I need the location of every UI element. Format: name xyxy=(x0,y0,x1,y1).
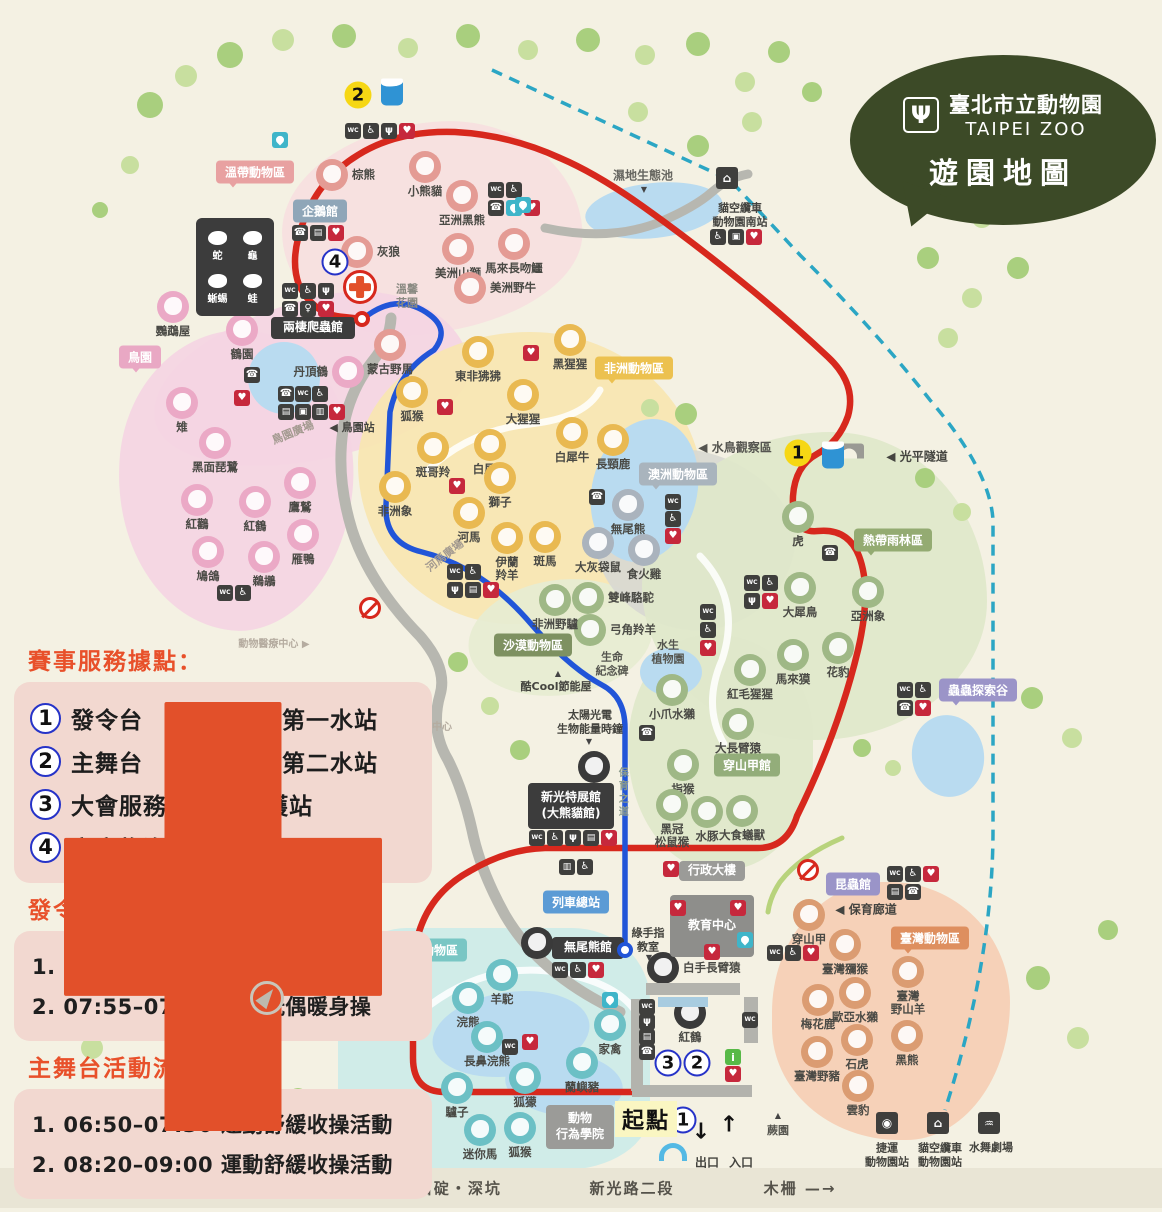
map-text: 濕地生態池 xyxy=(613,169,673,184)
reptile-item-label: 蜥蜴 xyxy=(208,274,228,305)
acc-icon: ♿ xyxy=(577,859,593,875)
animal-marker xyxy=(409,151,441,183)
animal-label: 弓角羚羊 xyxy=(610,623,656,636)
acc-icon: ♿ xyxy=(300,283,316,299)
food-icon: ψ xyxy=(447,582,463,598)
animal-label: 水豚 xyxy=(696,830,719,843)
animal-marker xyxy=(379,471,411,503)
wc-icon: WC xyxy=(295,386,311,402)
map-text: 捷運 動物園站 xyxy=(865,1141,909,1169)
wc-icon: WC xyxy=(217,585,233,601)
animal-label: 黑面琵鷺 xyxy=(192,461,238,474)
point-marker-1: 1 xyxy=(785,440,812,467)
phone-icon: ☎ xyxy=(282,301,298,317)
legend-row: 3 大會服務區 醫護站 xyxy=(30,787,416,821)
zone-tag: 澳洲動物區 xyxy=(639,463,717,486)
animal-label: 紅鶴 xyxy=(679,1031,702,1044)
acc-icon: ♿ xyxy=(785,945,801,961)
zoo-name-zh: 臺北市立動物園 xyxy=(949,89,1103,119)
aed-icon: ♥ xyxy=(803,945,819,961)
animal-marker xyxy=(484,462,516,494)
wc-icon: WC xyxy=(665,494,681,510)
animal-marker xyxy=(782,501,814,533)
animal-label: 亞洲黑熊 xyxy=(439,214,485,227)
zone-tag: 臺灣動物區 xyxy=(891,927,969,950)
animal-label: 獅子 xyxy=(489,496,512,509)
no-entry-icon xyxy=(359,597,381,619)
route-endpoint xyxy=(354,311,370,327)
phone-icon: ☎ xyxy=(292,225,308,241)
animal-marker xyxy=(284,467,316,499)
aed-icon: ♥ xyxy=(399,123,415,139)
bus-icon: ▣ xyxy=(728,229,744,245)
animal-label: 虎 xyxy=(792,535,804,548)
animal-marker xyxy=(839,977,871,1009)
animal-marker xyxy=(734,654,766,686)
animal-marker xyxy=(892,956,924,988)
drop-icon xyxy=(272,132,288,148)
aed-icon: ♥ xyxy=(437,399,453,415)
animal-marker xyxy=(332,356,364,388)
vend-icon: ▤ xyxy=(465,582,481,598)
animal-label: 馬來獏 xyxy=(776,673,811,686)
animal-marker xyxy=(507,379,539,411)
animal-marker xyxy=(793,899,825,931)
animal-marker xyxy=(574,614,606,646)
animal-marker xyxy=(504,1112,536,1144)
zoo-logo: Ψ 臺北市立動物園 TAIPEI ZOO 遊園地圖 xyxy=(850,55,1156,225)
animal-label: 鷹鷲 xyxy=(289,501,312,514)
animal-label: 黑熊 xyxy=(896,1054,919,1067)
animal-label: 狐猴 xyxy=(509,1146,532,1159)
building-label: 兩棲爬蟲館 xyxy=(271,317,355,339)
animal-marker xyxy=(316,159,348,191)
aed-icon: ♥ xyxy=(663,861,679,877)
zone-tag: 熱帶雨林區 xyxy=(854,529,932,552)
animal-marker xyxy=(453,497,485,529)
animal-label: 東非狒狒 xyxy=(455,370,501,383)
animal-label: 長頸鹿 xyxy=(596,458,631,471)
bus-icon: ▣ xyxy=(295,404,311,420)
point-marker-2: 2 xyxy=(345,82,372,109)
zone-tag: 列車總站 xyxy=(543,891,609,914)
map-text: 出口 xyxy=(695,1156,719,1171)
medical-cross-icon xyxy=(343,270,377,304)
wc-icon: WC xyxy=(552,962,568,978)
animal-marker xyxy=(802,984,834,1016)
aed-icon: ♥ xyxy=(588,962,604,978)
acc-icon: ♿ xyxy=(506,182,522,198)
zone-tag: 穿山甲館 xyxy=(714,754,780,777)
animal-marker xyxy=(396,376,428,408)
animal-label: 黑猩猩 xyxy=(553,358,588,371)
animal-label: 臺灣野豬 xyxy=(794,1070,840,1083)
animal-marker xyxy=(199,427,231,459)
vend-icon: ▤ xyxy=(583,830,599,846)
animal-marker xyxy=(287,519,319,551)
aed-icon: ♥ xyxy=(523,345,539,361)
animal-marker xyxy=(181,484,213,516)
animal-marker xyxy=(446,180,478,212)
animal-marker xyxy=(841,1024,873,1056)
animal-marker xyxy=(726,795,758,827)
aed-icon: ♥ xyxy=(234,390,250,406)
map-text: ▲ xyxy=(555,669,561,679)
animal-label: 灰狼 xyxy=(377,245,400,258)
animal-marker xyxy=(498,228,530,260)
zone-tag: 蟲蟲探索谷 xyxy=(939,679,1017,702)
phone-icon: ☎ xyxy=(278,386,294,402)
exhibit-icon xyxy=(578,751,610,783)
map-text: ◀ 光平隧道 xyxy=(886,450,947,465)
animal-label: 紅鶴 xyxy=(244,520,267,533)
animal-label: 鵜鶘 xyxy=(253,575,276,588)
animal-label: 斑哥羚 xyxy=(416,466,451,479)
acc-icon: ♿ xyxy=(547,830,563,846)
wc-icon: WC xyxy=(887,866,903,882)
wc-icon: WC xyxy=(639,999,655,1015)
animal-label: 鳩鴿 xyxy=(197,570,220,583)
animal-marker xyxy=(597,424,629,456)
map-text: 貓空纜車 動物園南站 xyxy=(713,201,768,229)
aed-icon: ♥ xyxy=(483,582,499,598)
map-title: 遊園地圖 xyxy=(850,150,1156,192)
map-text: 蕨園 xyxy=(767,1124,789,1138)
mrt-icon: ◉ xyxy=(876,1112,898,1134)
phone-icon: ☎ xyxy=(822,545,838,561)
animal-marker xyxy=(248,541,280,573)
acc-icon: ♿ xyxy=(915,682,931,698)
point-3-badge: 3 xyxy=(30,789,61,820)
animal-marker xyxy=(166,387,198,419)
animal-marker xyxy=(491,522,523,554)
animal-label: 鶴園 xyxy=(231,348,254,361)
animal-marker xyxy=(474,429,506,461)
food-icon: ψ xyxy=(639,1014,655,1030)
aed-icon: ♥ xyxy=(704,944,720,960)
phone-icon: ☎ xyxy=(639,725,655,741)
zoo-name-en: TAIPEI ZOO xyxy=(949,119,1103,140)
train-icon: ▥ xyxy=(559,859,575,875)
aed-icon: ♥ xyxy=(665,528,681,544)
aed-icon: ♥ xyxy=(601,830,617,846)
animal-marker xyxy=(829,929,861,961)
animal-label: 家禽 xyxy=(599,1043,622,1056)
acc-icon: ♿ xyxy=(570,962,586,978)
animal-marker xyxy=(454,272,486,304)
animal-marker xyxy=(822,632,854,664)
acc-icon: ♿ xyxy=(762,575,778,591)
acc-icon: ♿ xyxy=(700,622,716,638)
animal-marker xyxy=(529,521,561,553)
race-legend: 賽事服務據點： 1 發令台 1 第一水站 2 主舞台 2 第二水站 3 大會服務… xyxy=(14,634,432,1199)
animal-marker xyxy=(656,789,688,821)
map-text: ◀ 水鳥觀察區 xyxy=(698,441,771,456)
vend-icon: ▤ xyxy=(310,225,326,241)
phone-icon: ☎ xyxy=(905,884,921,900)
start-point-label: 起點 xyxy=(615,1101,677,1137)
aed-icon: ♥ xyxy=(746,229,762,245)
point-1-badge: 1 xyxy=(30,703,61,734)
animal-marker xyxy=(509,1062,541,1094)
map-text: ◀ 鳥園站 xyxy=(329,421,374,435)
water-cup-icon xyxy=(381,79,403,106)
map-text: 綠手指 教室 xyxy=(632,926,665,954)
fountain-icon: ♒ xyxy=(978,1112,1000,1134)
animal-label: 紅鸛 xyxy=(186,518,209,531)
animal-marker xyxy=(464,1114,496,1146)
legend-panel-points: 1 發令台 1 第一水站 2 主舞台 2 第二水站 3 大會服務區 醫護站 4 xyxy=(14,682,432,883)
wc-icon: WC xyxy=(447,564,463,580)
animal-label: 丹頂鶴 xyxy=(294,365,329,378)
food-icon: ψ xyxy=(565,830,581,846)
map-text: 水生 植物園 xyxy=(652,638,685,666)
map-text: 酷Cool節能屋 xyxy=(521,680,592,694)
animal-label: 大食蟻獸 xyxy=(719,829,765,842)
zone-tag: 企鵝館 xyxy=(293,200,347,223)
zone-tag: 溫帶動物區 xyxy=(216,161,294,184)
route-endpoint xyxy=(617,942,633,958)
drop-icon xyxy=(602,992,618,1008)
wc-icon: WC xyxy=(744,575,760,591)
animal-label: 花豹 xyxy=(827,666,850,679)
aed-icon: ♥ xyxy=(449,478,465,494)
wc-icon: WC xyxy=(488,182,504,198)
plaza-structure xyxy=(632,1085,752,1097)
building-label: 行政大樓 xyxy=(679,861,745,881)
animal-label: 蘭嶼豬 xyxy=(565,1081,600,1094)
animal-marker xyxy=(628,534,660,566)
acc-icon: ♿ xyxy=(710,229,726,245)
gondola-icon: ⌂ xyxy=(716,167,738,189)
animal-label: 亞洲象 xyxy=(851,610,886,623)
phone-icon: ☎ xyxy=(589,489,605,505)
wc-icon: WC xyxy=(767,945,783,961)
acc-icon: ♿ xyxy=(312,386,328,402)
aed-icon: ♥ xyxy=(318,301,334,317)
legend-title: 賽事服務據點： xyxy=(28,642,432,676)
wc-icon: WC xyxy=(529,830,545,846)
zoo-logo-mark-icon: Ψ xyxy=(903,97,939,133)
zone-tag: 鳥園 xyxy=(119,346,161,369)
point-marker-3: 3 xyxy=(655,1050,682,1077)
map-text: ▼ xyxy=(646,953,652,963)
aed-icon: ♥ xyxy=(700,640,716,656)
aed-icon: ♥ xyxy=(328,225,344,241)
animal-marker xyxy=(441,1072,473,1104)
map-text: 生命 紀念碑 xyxy=(596,650,629,678)
acc-icon: ♿ xyxy=(905,866,921,882)
animal-label: 羊駝 xyxy=(491,993,514,1006)
animal-marker xyxy=(417,432,449,464)
animal-label: 鸚鵡屋 xyxy=(156,325,191,338)
point-2-badge: 2 xyxy=(30,746,61,777)
animal-label: 雲豹 xyxy=(847,1104,870,1117)
animal-marker xyxy=(239,486,271,518)
animal-marker xyxy=(554,324,586,356)
animal-label: 臺灣 野山羊 xyxy=(891,990,926,1016)
building-label: 無尾熊館 xyxy=(552,937,624,959)
reptile-item-label: 蛙 xyxy=(243,274,262,305)
animal-label: 白犀牛 xyxy=(555,451,590,464)
animal-marker xyxy=(801,1036,833,1068)
map-text: 水舞劇場 xyxy=(969,1141,1013,1155)
aed-icon: ♥ xyxy=(522,1034,538,1050)
animal-marker xyxy=(374,329,406,361)
animal-label: 伊蘭 羚羊 xyxy=(496,556,519,582)
animal-marker xyxy=(594,1009,626,1041)
food-icon: ψ xyxy=(318,283,334,299)
animal-marker xyxy=(442,233,474,265)
vend-icon: ▤ xyxy=(278,404,294,420)
phone-icon: ☎ xyxy=(244,367,260,383)
animal-label: 美洲野牛 xyxy=(490,281,536,294)
animal-label: 迷你馬 xyxy=(463,1148,498,1161)
drop-icon xyxy=(515,197,531,213)
animal-label: 狐獴 xyxy=(514,1096,537,1109)
animal-label: 小熊貓 xyxy=(408,185,443,198)
animal-label: 黑冠 松鼠猴 xyxy=(655,823,690,849)
animal-label: 大猩猩 xyxy=(506,413,541,426)
acc-icon: ♿ xyxy=(235,585,251,601)
medical-cross-icon xyxy=(201,789,231,819)
map-text: 入口 xyxy=(729,1156,753,1171)
phone-icon: ☎ xyxy=(639,1044,655,1060)
wc-icon: WC xyxy=(700,604,716,620)
phone-icon: ☎ xyxy=(488,200,504,216)
animal-label: 非洲野驢 xyxy=(532,618,578,631)
animal-marker xyxy=(226,314,258,346)
animal-marker xyxy=(556,417,588,449)
animal-marker xyxy=(486,959,518,991)
animal-label: 雉 xyxy=(176,421,188,434)
animal-label: 白手長臂猿 xyxy=(683,961,741,974)
zone-tag: 非洲動物區 xyxy=(595,357,673,380)
map-text: 貓空纜車 動物園站 xyxy=(918,1141,962,1169)
phone-icon: ☎ xyxy=(897,700,913,716)
wc-icon: WC xyxy=(345,123,361,139)
drop-icon xyxy=(737,932,753,948)
animal-label: 大犀鳥 xyxy=(783,606,818,619)
aed-icon: ♥ xyxy=(915,700,931,716)
animal-marker xyxy=(582,527,614,559)
animal-label: 蒙古野馬 xyxy=(367,363,413,376)
wc-icon: WC xyxy=(502,1039,518,1055)
nurse-icon: ♀ xyxy=(300,301,316,317)
animal-marker xyxy=(462,336,494,368)
animal-marker xyxy=(891,1020,923,1052)
animal-marker xyxy=(852,576,884,608)
aed-icon: ♥ xyxy=(670,900,686,916)
animal-marker xyxy=(612,489,644,521)
food-icon: ψ xyxy=(381,123,397,139)
no-entry-icon xyxy=(797,859,819,881)
water-2-label: 第二水站 xyxy=(282,744,378,778)
animal-marker xyxy=(656,674,688,706)
animal-marker xyxy=(777,639,809,671)
animal-label: 梅花鹿 xyxy=(801,1018,836,1031)
animal-marker xyxy=(842,1070,874,1102)
acc-icon: ♿ xyxy=(465,564,481,580)
train-icon: ▥ xyxy=(312,404,328,420)
info-icon: i xyxy=(725,1049,741,1065)
zone-tag: 昆蟲館 xyxy=(826,873,880,896)
plaza-structure xyxy=(658,997,708,1007)
vend-icon: ▤ xyxy=(887,884,903,900)
animal-marker xyxy=(471,1021,503,1053)
aed-icon: ♥ xyxy=(923,866,939,882)
road-label-right: 木柵 —→ xyxy=(764,1178,837,1199)
acc-icon: ♿ xyxy=(363,123,379,139)
animal-label: 雙峰駱駝 xyxy=(608,591,654,604)
animal-marker xyxy=(667,749,699,781)
building-label: 動物 行為學院 xyxy=(546,1105,614,1149)
animal-label: 大灰袋鼠 xyxy=(575,561,621,574)
reptile-item-label: 龜 xyxy=(243,231,262,262)
zone-tag: 沙漠動物區 xyxy=(494,634,572,657)
animal-label: 紅毛猩猩 xyxy=(727,688,773,701)
compass-icon xyxy=(250,981,284,1015)
point-marker-4: 4 xyxy=(322,249,349,276)
animal-label: 馬來長吻鱷 xyxy=(485,262,543,275)
map-text: ▲ xyxy=(775,1111,781,1121)
animal-marker xyxy=(691,796,723,828)
animal-label: 驢子 xyxy=(446,1106,469,1119)
animal-marker xyxy=(157,291,189,323)
plaza-structure xyxy=(646,983,740,995)
road-label-center: 新光路二段 xyxy=(589,1178,674,1199)
animal-marker xyxy=(566,1047,598,1079)
animal-marker xyxy=(722,708,754,740)
point-4-badge: 4 xyxy=(30,832,61,863)
animal-label: 雁鴨 xyxy=(292,553,315,566)
animal-marker xyxy=(572,582,604,614)
animal-label: 食火雞 xyxy=(627,568,662,581)
water-cup-icon xyxy=(822,442,844,469)
wc-icon: WC xyxy=(742,1012,758,1028)
water-1-label: 第一水站 xyxy=(282,701,378,735)
map-text: ◀ 保育廊道 xyxy=(835,903,896,918)
reptile-house-box: 蛇龜蜥蜴蛙 xyxy=(196,218,274,316)
map-text: 太陽光電 生物能量時鐘 xyxy=(557,708,623,736)
animal-label: 臺灣獼猴 xyxy=(822,963,868,976)
aed-icon: ♥ xyxy=(730,900,746,916)
vend-icon: ▤ xyxy=(639,1029,655,1045)
animal-label: 斑馬 xyxy=(534,555,557,568)
aed-icon: ♥ xyxy=(762,593,778,609)
animal-marker xyxy=(784,572,816,604)
animal-label: 非洲象 xyxy=(378,505,413,518)
point-marker-2: 2 xyxy=(684,1050,711,1077)
map-text: ↑ xyxy=(720,1111,738,1139)
wc-icon: WC xyxy=(282,283,298,299)
zoo-map-page: 棕熊小熊貓亞洲黑熊灰狼美洲山獅馬來長吻鱷美洲野牛蒙古野馬鸚鵡屋鶴園丹頂鶴雉黑面琵… xyxy=(0,0,1162,1212)
map-text: 保育之道 xyxy=(615,767,628,819)
gondola-icon: ⌂ xyxy=(927,1112,949,1134)
animal-marker xyxy=(192,536,224,568)
reptile-item-label: 蛇 xyxy=(208,231,227,262)
animal-marker xyxy=(539,584,571,616)
map-text: ▼ xyxy=(641,185,647,195)
building-label: 新光特展館 (大熊貓館) xyxy=(528,783,614,829)
animal-label: 棕熊 xyxy=(352,168,375,181)
exhibit-icon xyxy=(521,927,553,959)
animal-marker xyxy=(452,982,484,1014)
wc-icon: WC xyxy=(897,682,913,698)
animal-label: 長鼻浣熊 xyxy=(464,1055,510,1068)
aed-icon: ♥ xyxy=(329,404,345,420)
animal-label: 小爪水獺 xyxy=(649,708,695,721)
